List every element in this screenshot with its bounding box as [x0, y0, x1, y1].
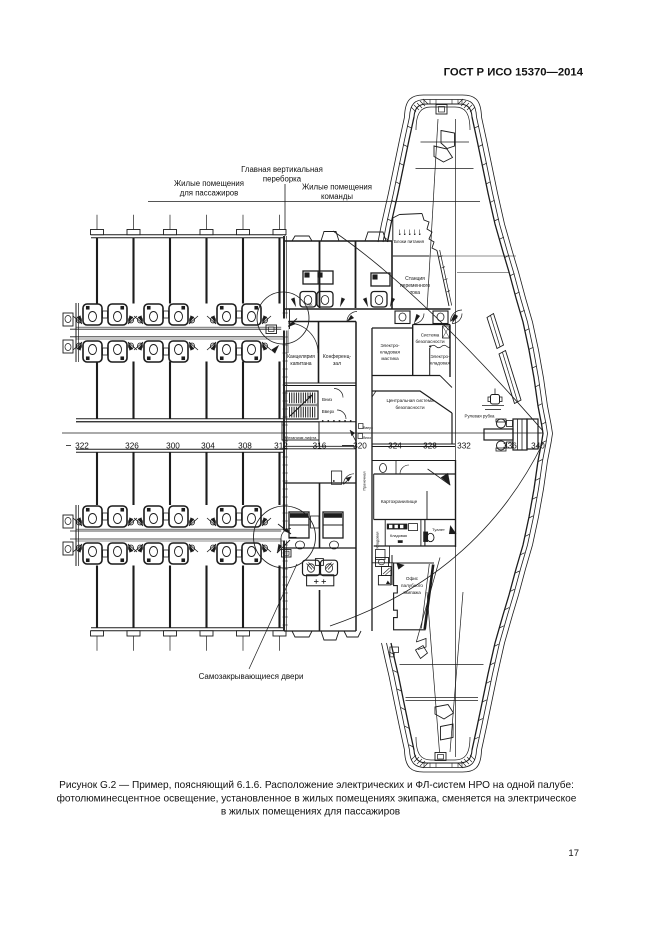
svg-text:328: 328	[423, 442, 437, 451]
svg-text:312: 312	[274, 442, 288, 451]
svg-text:Система: Система	[421, 333, 440, 338]
svg-text:322: 322	[75, 442, 89, 451]
svg-text:палубного: палубного	[401, 583, 423, 588]
svg-text:в жилых помещениях для пассажи: в жилых помещениях для пассажиров	[221, 807, 400, 818]
svg-text:Конференц-: Конференц-	[323, 354, 352, 360]
svg-text:переборка: переборка	[263, 175, 302, 184]
svg-text:308: 308	[238, 442, 252, 451]
svg-text:Вниз: Вниз	[363, 436, 371, 440]
svg-text:Кладовая: Кладовая	[390, 534, 407, 538]
svg-text:Кладовая: Кладовая	[376, 531, 380, 548]
svg-text:ГОСТ Р ИСО 15370—2014: ГОСТ Р ИСО 15370—2014	[444, 67, 584, 79]
svg-text:Картохранилище: Картохранилище	[381, 499, 418, 504]
svg-text:ПК: ПК	[308, 303, 314, 307]
svg-text:тока: тока	[410, 290, 420, 296]
svg-text:фотолюминесцентное освещение,: фотолюминесцентное освещение, установлен…	[57, 793, 577, 805]
svg-text:кладовая: кладовая	[380, 350, 400, 355]
svg-text:кладовая: кладовая	[430, 361, 450, 366]
svg-text:300: 300	[166, 442, 180, 451]
svg-text:экипажа: экипажа	[403, 590, 421, 595]
svg-text:Самозакрывающиеся двери: Самозакрывающиеся двери	[199, 672, 304, 681]
svg-text:Жилые помещения: Жилые помещения	[302, 183, 372, 192]
svg-text:Механизм лифта: Механизм лифта	[285, 435, 317, 440]
svg-text:332: 332	[457, 442, 471, 451]
svg-text:безопасности: безопасности	[395, 405, 424, 410]
svg-text:для пассажиров: для пассажиров	[180, 189, 239, 198]
svg-text:команды: команды	[321, 192, 353, 201]
svg-text:мастика: мастика	[381, 356, 399, 361]
svg-text:Блоки питания: Блоки питания	[394, 239, 425, 244]
svg-text:320: 320	[353, 442, 367, 451]
svg-text:Офис: Офис	[406, 576, 419, 581]
svg-text:324: 324	[388, 442, 402, 451]
svg-text:Вверх: Вверх	[322, 409, 335, 414]
svg-text:Туалет: Туалет	[432, 527, 445, 532]
svg-text:304: 304	[201, 442, 215, 451]
svg-text:Жилые помещения: Жилые помещения	[174, 179, 244, 188]
svg-text:Главная вертикальная: Главная вертикальная	[241, 165, 323, 174]
svg-text:316: 316	[313, 442, 327, 451]
svg-text:326: 326	[125, 442, 139, 451]
svg-text:Электро-: Электро-	[380, 343, 400, 348]
svg-text:Вниз: Вниз	[322, 397, 332, 402]
svg-text:капитана: капитана	[290, 361, 311, 367]
svg-text:17: 17	[568, 848, 579, 859]
svg-text:безопасности: безопасности	[415, 339, 444, 344]
svg-text:Канцелярия: Канцелярия	[287, 354, 315, 360]
svg-text:Рисунок G.2 — Пример, поясняющ: Рисунок G.2 — Пример, поясняющий 6.1.6. …	[59, 779, 574, 791]
svg-text:Рулевая рубка: Рулевая рубка	[465, 414, 496, 419]
svg-text:Станция: Станция	[405, 276, 425, 282]
svg-text:зал: зал	[333, 361, 341, 367]
svg-text:Центральная система: Центральная система	[386, 398, 434, 403]
svg-text:Прачечная: Прачечная	[363, 471, 367, 490]
svg-text:переменного: переменного	[400, 283, 430, 289]
svg-text:Электро-: Электро-	[430, 354, 450, 359]
